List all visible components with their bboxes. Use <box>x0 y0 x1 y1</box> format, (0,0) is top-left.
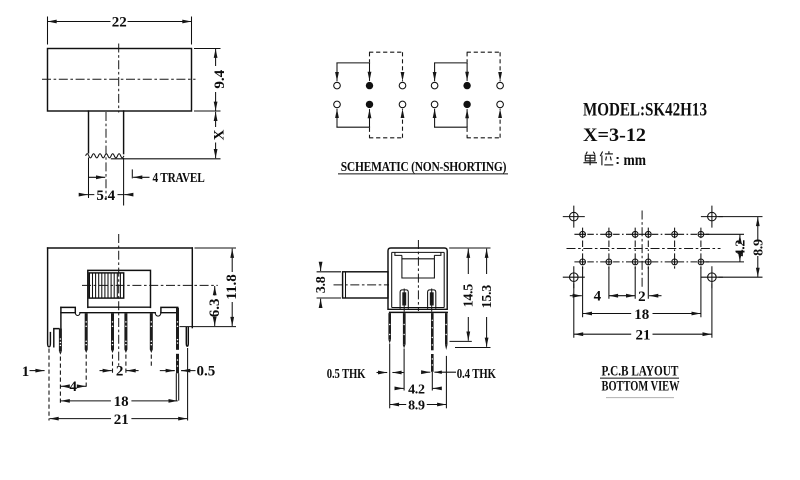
svg-text:0.4 THK: 0.4 THK <box>457 366 497 381</box>
svg-text:2: 2 <box>116 364 124 380</box>
svg-text:4.2: 4.2 <box>734 240 749 257</box>
svg-text:4.2: 4.2 <box>408 383 425 398</box>
svg-text:8.9: 8.9 <box>751 239 766 256</box>
svg-text:21: 21 <box>114 412 129 428</box>
svg-text:X: X <box>211 129 227 140</box>
svg-text:11.8: 11.8 <box>224 274 240 299</box>
svg-text:18: 18 <box>114 394 129 410</box>
svg-text:22: 22 <box>112 15 127 31</box>
svg-text:4: 4 <box>69 379 77 395</box>
svg-text:mm: mm <box>624 152 647 169</box>
svg-text:4: 4 <box>594 289 602 305</box>
svg-text:X=3-12: X=3-12 <box>583 125 646 146</box>
svg-text:MODEL:SK42H13: MODEL:SK42H13 <box>583 100 707 121</box>
svg-text:9.4: 9.4 <box>212 69 228 88</box>
svg-text:0.5 THK: 0.5 THK <box>327 366 366 381</box>
svg-text:0.5: 0.5 <box>197 364 216 380</box>
svg-text:4 TRAVEL: 4 TRAVEL <box>153 171 205 186</box>
svg-text:18: 18 <box>634 307 649 323</box>
svg-text:15.3: 15.3 <box>480 285 495 309</box>
svg-text:14.5: 14.5 <box>462 284 477 308</box>
svg-text:6.3: 6.3 <box>207 299 223 318</box>
svg-text:21: 21 <box>636 327 651 343</box>
svg-text:BOTTOM VIEW: BOTTOM VIEW <box>602 379 680 395</box>
svg-text:SCHEMATIC (NON-SHORTING): SCHEMATIC (NON-SHORTING) <box>341 160 507 175</box>
svg-text:P.C.B LAYOUT: P.C.B LAYOUT <box>602 364 679 380</box>
svg-text:5.4: 5.4 <box>96 188 115 204</box>
svg-text:8.9: 8.9 <box>408 399 425 414</box>
svg-text:2: 2 <box>638 289 646 305</box>
svg-text:3.8: 3.8 <box>314 276 329 293</box>
svg-text:1: 1 <box>22 364 30 380</box>
